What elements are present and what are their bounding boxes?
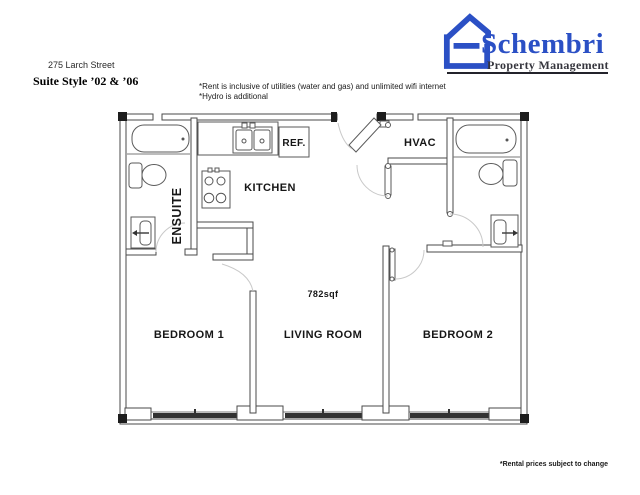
room-label-living-room: LIVING ROOM — [284, 329, 362, 341]
area-label: 782sqf — [308, 289, 340, 299]
bathroom-door-swing — [450, 214, 483, 247]
bathroom-left-wall — [447, 118, 453, 213]
refrigerator-label: REF. — [282, 138, 305, 149]
stove — [202, 168, 230, 208]
bottom-windows — [125, 406, 521, 420]
bathtub-main — [456, 125, 516, 153]
room-labels: ENSUITE BEDROOM 1 LIVING ROOM BEDROOM 2 … — [154, 188, 493, 341]
sink-vanity-main — [491, 215, 518, 247]
room-label-bedroom2: BEDROOM 2 — [423, 329, 493, 341]
hvac-bottom-wall — [388, 158, 452, 164]
room-label-bedroom1: BEDROOM 1 — [154, 329, 224, 341]
ensuite-right-wall — [191, 118, 197, 255]
ensuite-bottom-wall — [126, 249, 156, 255]
bedroom2-door-leaf — [390, 249, 395, 280]
hvac-door-swing — [357, 165, 388, 196]
ensuite-room — [126, 118, 197, 255]
entry-door — [331, 112, 389, 152]
bedroom2-door-swing — [395, 250, 424, 279]
wall-corner-blocks — [118, 112, 529, 423]
toilet-main — [479, 160, 517, 186]
floor-plan-drawing: REF. KITCHEN — [0, 0, 640, 495]
bathroom-right — [427, 118, 522, 252]
bathtub-ensuite — [132, 125, 189, 152]
room-label-hvac: HVAC — [404, 137, 436, 149]
kitchen-sink — [233, 123, 272, 153]
room-label-kitchen: KITCHEN — [244, 182, 296, 194]
kitchen-area: REF. KITCHEN — [198, 122, 309, 208]
sink-vanity-ensuite — [131, 217, 155, 248]
partition-bedroom2 — [383, 246, 424, 413]
partition-bedroom1 — [222, 264, 256, 413]
outer-walls — [120, 114, 527, 424]
hvac-door-leaf — [385, 166, 391, 195]
refrigerator: REF. — [279, 127, 309, 157]
bedroom1-door-swing — [222, 264, 253, 291]
bedroom1-closet — [197, 222, 253, 260]
toilet-ensuite — [129, 163, 166, 188]
price-disclaimer: *Rental prices subject to change — [500, 461, 608, 468]
entry-door-leaf — [349, 118, 381, 152]
floorplan-page: 275 Larch Street Suite Style ’02 & ’06 *… — [0, 0, 640, 495]
room-label-ensuite: ENSUITE — [170, 188, 184, 245]
